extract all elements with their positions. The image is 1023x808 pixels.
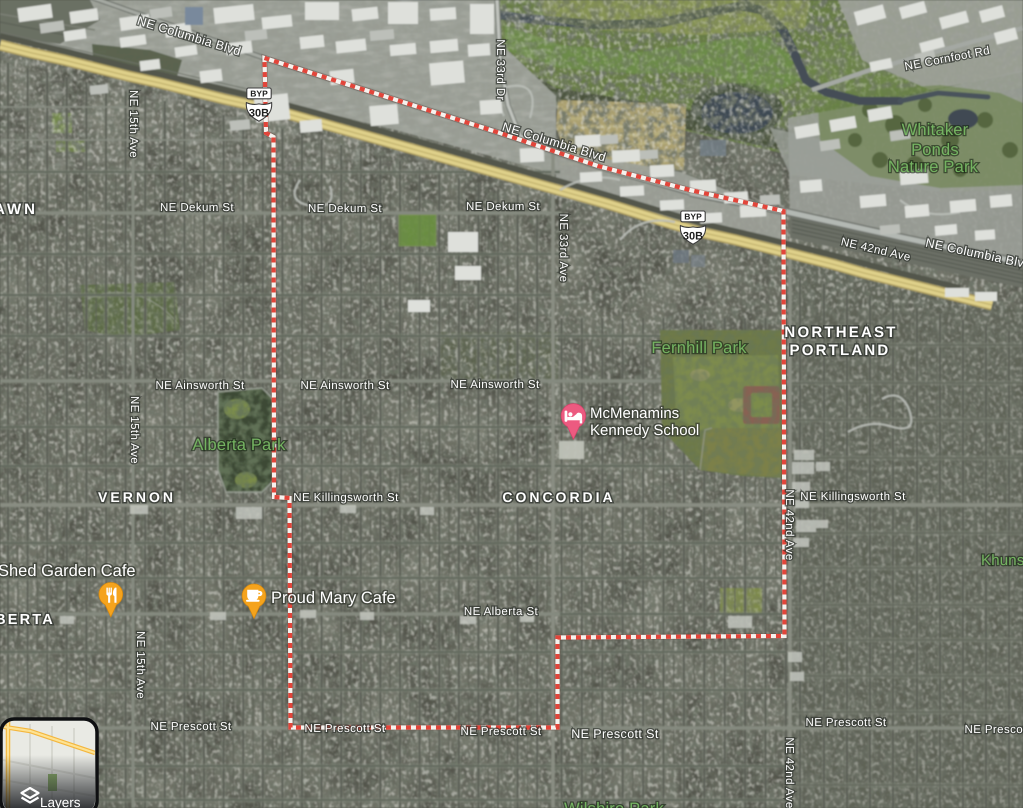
svg-text:NORTHEAST: NORTHEAST (784, 324, 897, 341)
svg-text:NE Alberta St: NE Alberta St (464, 606, 539, 618)
svg-text:NE Prescott St: NE Prescott St (805, 717, 886, 729)
svg-text:NE 15th Ave: NE 15th Ave (134, 631, 146, 699)
svg-text:CONCORDIA: CONCORDIA (502, 489, 615, 505)
svg-text:30B: 30B (683, 231, 703, 243)
svg-text:VERNON: VERNON (98, 489, 176, 505)
svg-text:NE Prescott St: NE Prescott St (571, 727, 659, 741)
svg-text:NE Ainsworth St: NE Ainsworth St (155, 380, 244, 392)
svg-text:NE 42nd Ave: NE 42nd Ave (783, 737, 795, 808)
svg-text:NE Prescott St: NE Prescott St (964, 724, 1023, 736)
svg-text:NE Dekum St: NE Dekum St (466, 201, 540, 213)
svg-text:Proud Mary Cafe: Proud Mary Cafe (271, 589, 396, 607)
svg-text:Ponds: Ponds (911, 141, 959, 159)
svg-text:Kennedy School: Kennedy School (590, 422, 699, 439)
svg-text:Wilshire Park: Wilshire Park (564, 800, 664, 808)
svg-text:NE Prescott St: NE Prescott St (304, 723, 385, 735)
svg-text:Layers: Layers (40, 795, 81, 808)
svg-text:Alberta Park: Alberta Park (192, 436, 286, 454)
svg-text:30B: 30B (249, 108, 269, 120)
svg-text:NE 15th Ave: NE 15th Ave (128, 396, 140, 464)
svg-text:NE Dekum St: NE Dekum St (160, 202, 234, 214)
svg-text:NE Killingsworth St: NE Killingsworth St (800, 491, 906, 503)
svg-text:McMenamins: McMenamins (590, 405, 679, 422)
svg-text:NE Prescott St: NE Prescott St (150, 721, 231, 733)
svg-text:Khuns: Khuns (981, 552, 1023, 569)
svg-text:Fernhill Park: Fernhill Park (651, 339, 747, 357)
svg-text:NE 42nd Ave: NE 42nd Ave (783, 489, 795, 560)
svg-text:BERTA: BERTA (0, 612, 55, 628)
svg-text:Nature Park: Nature Park (888, 158, 979, 176)
svg-text:AWN: AWN (0, 201, 38, 218)
svg-text:NE Killingsworth St: NE Killingsworth St (293, 492, 399, 504)
svg-text:NE 33rd Ave: NE 33rd Ave (557, 214, 569, 283)
svg-text:Whitaker: Whitaker (902, 121, 969, 139)
svg-text:BYP: BYP (250, 89, 268, 99)
svg-text:NE 33rd Dr: NE 33rd Dr (494, 39, 506, 101)
svg-text:BYP: BYP (684, 212, 702, 222)
svg-text:NE Dekum St: NE Dekum St (308, 203, 382, 215)
svg-text:Shed Garden Cafe: Shed Garden Cafe (0, 562, 136, 580)
svg-text:NE Ainsworth St: NE Ainsworth St (450, 379, 539, 391)
svg-text:PORTLAND: PORTLAND (790, 342, 891, 359)
svg-text:NE 15th Ave: NE 15th Ave (127, 90, 139, 158)
svg-text:NE Ainsworth St: NE Ainsworth St (300, 380, 389, 392)
svg-text:NE Prescott St: NE Prescott St (460, 726, 541, 738)
